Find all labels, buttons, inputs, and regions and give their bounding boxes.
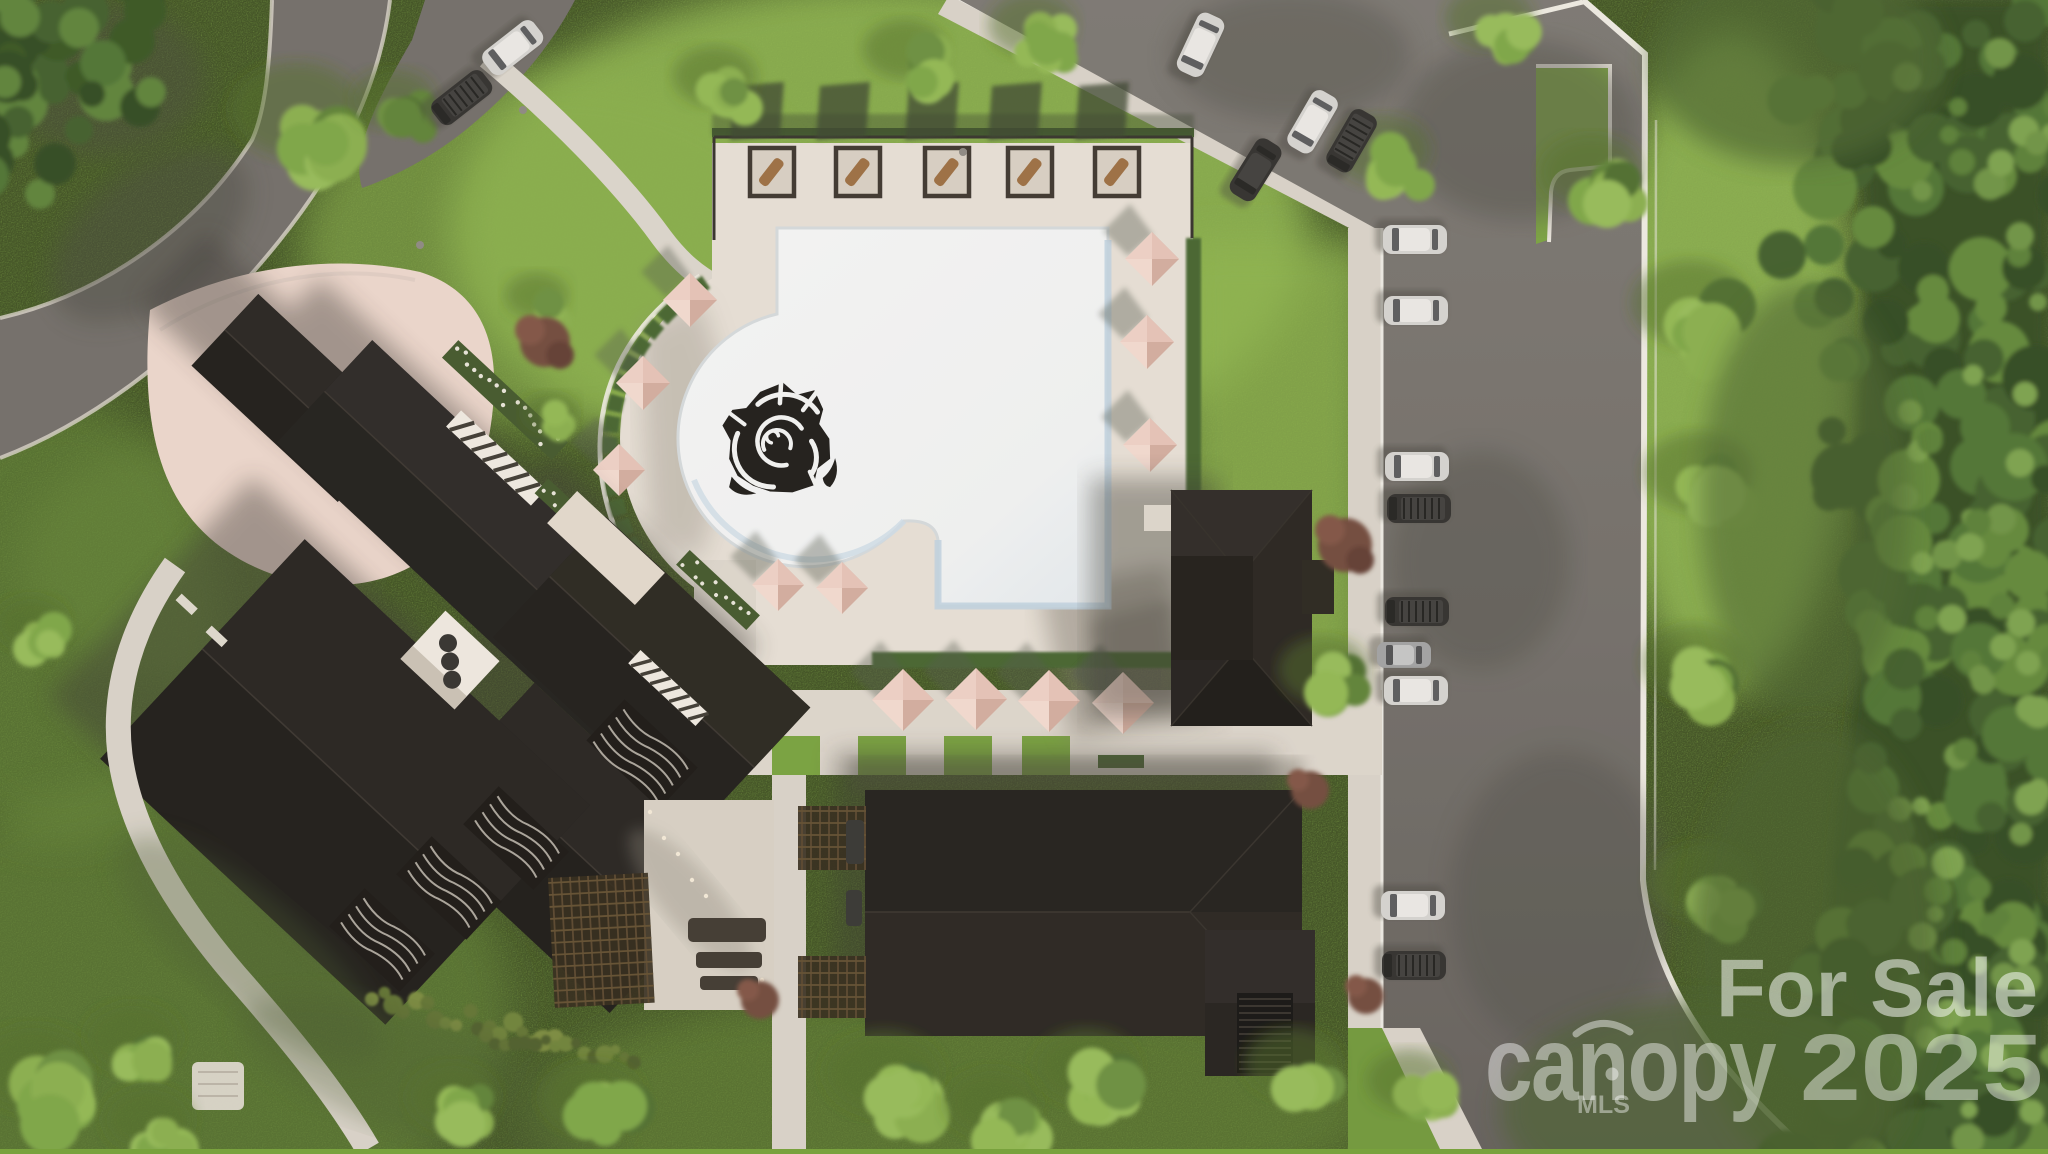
svg-text:canopy: canopy xyxy=(1485,1005,1777,1123)
svg-text:MLS: MLS xyxy=(1577,1091,1630,1119)
svg-text:2025: 2025 xyxy=(1800,1015,2043,1121)
